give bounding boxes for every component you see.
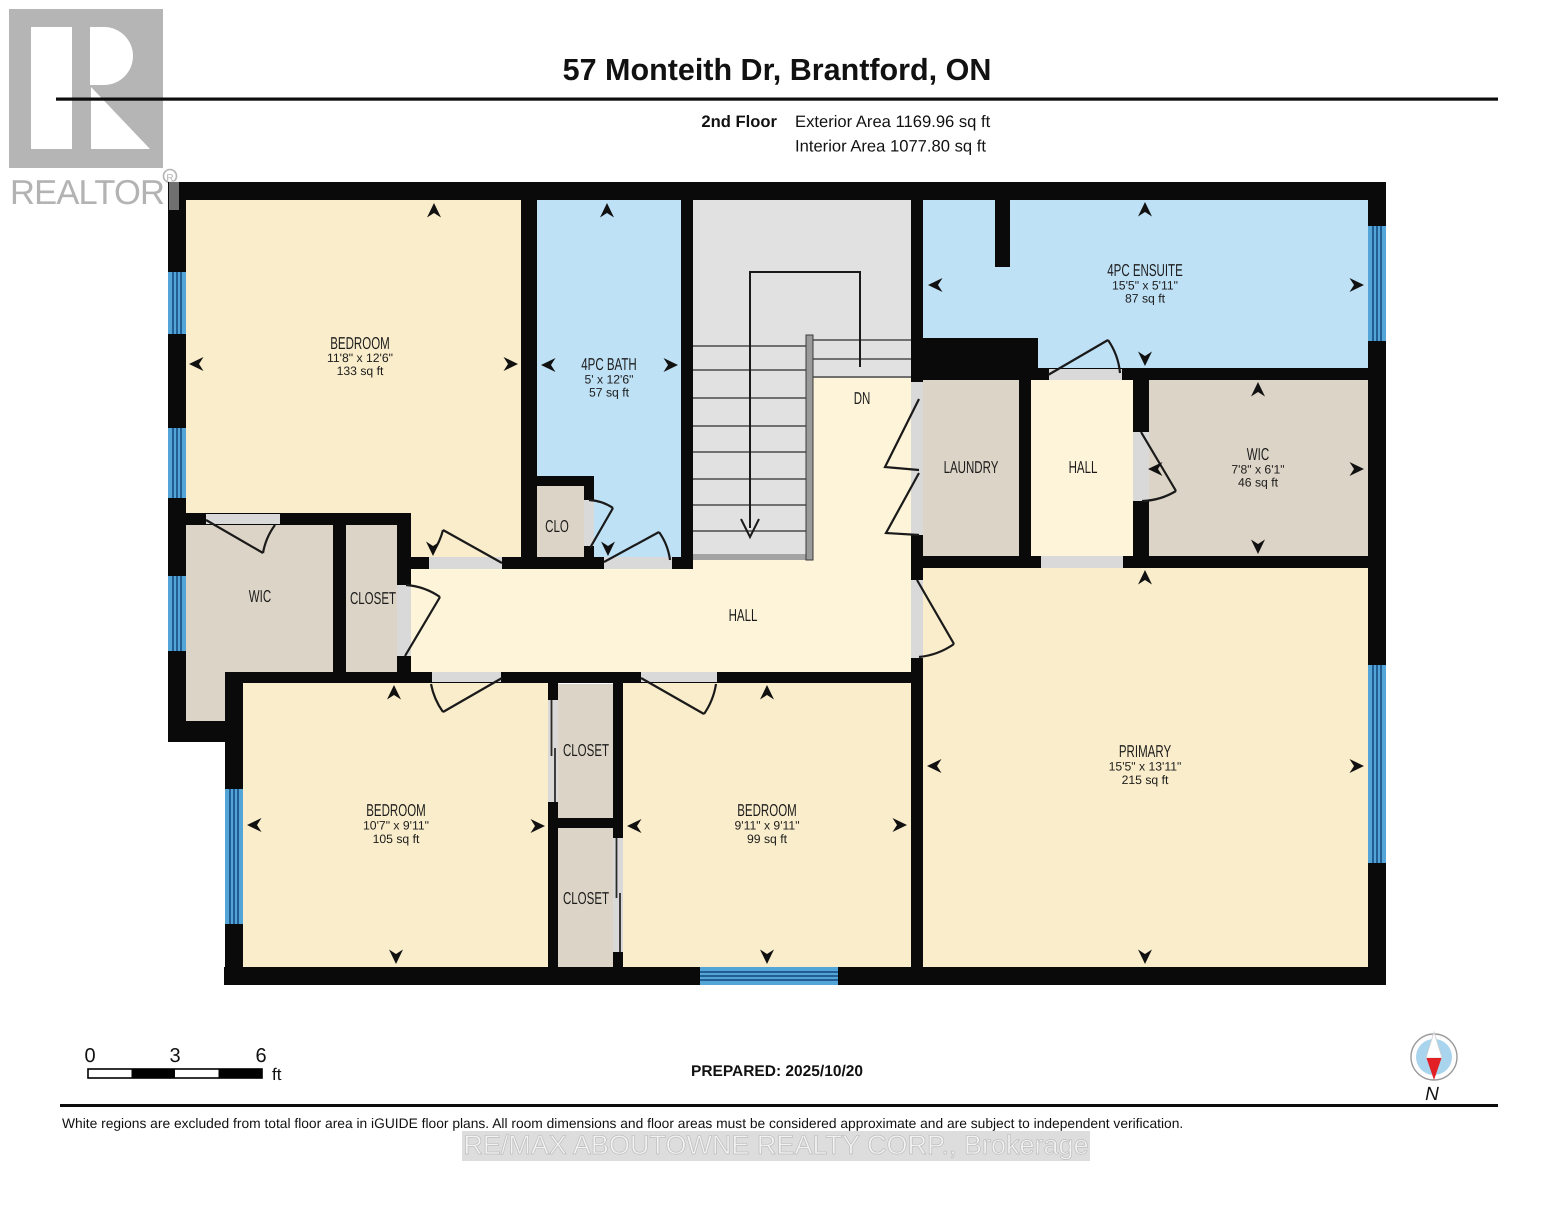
svg-text:LAUNDRY: LAUNDRY (944, 457, 999, 477)
svg-text:HALL: HALL (729, 605, 758, 625)
svg-text:9'11" x 9'11": 9'11" x 9'11" (734, 819, 799, 833)
svg-text:5' x 12'6": 5' x 12'6" (585, 373, 634, 387)
svg-text:HALL: HALL (1069, 457, 1098, 477)
svg-text:2nd Floor: 2nd Floor (701, 112, 777, 131)
svg-text:87 sq ft: 87 sq ft (1125, 292, 1166, 306)
svg-text:10'7" x 9'11": 10'7" x 9'11" (363, 819, 429, 833)
svg-text:3: 3 (169, 1045, 180, 1067)
svg-text:ft: ft (272, 1065, 282, 1084)
svg-text:WIC: WIC (249, 586, 271, 606)
svg-text:4PC ENSUITE: 4PC ENSUITE (1107, 260, 1183, 280)
svg-text:46 sq ft: 46 sq ft (1238, 476, 1279, 490)
svg-text:15'5" x 13'11": 15'5" x 13'11" (1109, 760, 1182, 774)
svg-text:99 sq ft: 99 sq ft (747, 832, 788, 846)
svg-text:CLOSET: CLOSET (563, 740, 609, 760)
svg-text:White regions are excluded fro: White regions are excluded from total fl… (62, 1116, 1183, 1131)
svg-text:Interior Area 1077.80 sq ft: Interior Area 1077.80 sq ft (795, 137, 986, 156)
svg-text:N: N (1425, 1084, 1439, 1105)
svg-text:Exterior Area 1169.96 sq ft: Exterior Area 1169.96 sq ft (795, 112, 991, 131)
svg-text:6: 6 (255, 1045, 266, 1067)
svg-text:57 Monteith Dr, Brantford, ON: 57 Monteith Dr, Brantford, ON (563, 53, 992, 87)
svg-text:PREPARED: 2025/10/20: PREPARED: 2025/10/20 (691, 1063, 863, 1080)
svg-text:PRIMARY: PRIMARY (1119, 741, 1172, 761)
svg-text:0: 0 (84, 1045, 95, 1067)
svg-text:105 sq ft: 105 sq ft (373, 832, 420, 846)
svg-text:CLOSET: CLOSET (350, 588, 396, 608)
svg-text:BEDROOM: BEDROOM (737, 800, 797, 820)
svg-text:BEDROOM: BEDROOM (330, 333, 390, 353)
svg-text:BEDROOM: BEDROOM (366, 800, 426, 820)
svg-text:CLOSET: CLOSET (563, 888, 609, 908)
svg-text:7'8" x 6'1": 7'8" x 6'1" (1231, 463, 1284, 477)
svg-text:215 sq ft: 215 sq ft (1122, 773, 1169, 787)
svg-text:RE/MAX ABOUTOWNE REALTY CORP.,: RE/MAX ABOUTOWNE REALTY CORP., Brokerage (463, 1130, 1088, 1160)
svg-text:CLO: CLO (545, 516, 569, 536)
svg-text:11'8" x 12'6": 11'8" x 12'6" (327, 351, 393, 365)
svg-text:15'5" x 5'11": 15'5" x 5'11" (1112, 279, 1178, 293)
svg-text:133 sq ft: 133 sq ft (337, 364, 384, 378)
svg-text:57 sq ft: 57 sq ft (589, 386, 630, 400)
svg-text:4PC BATH: 4PC BATH (581, 354, 636, 374)
svg-text:REALTOR: REALTOR (10, 174, 164, 212)
svg-text:WIC: WIC (1247, 444, 1269, 464)
svg-text:DN: DN (854, 388, 871, 408)
